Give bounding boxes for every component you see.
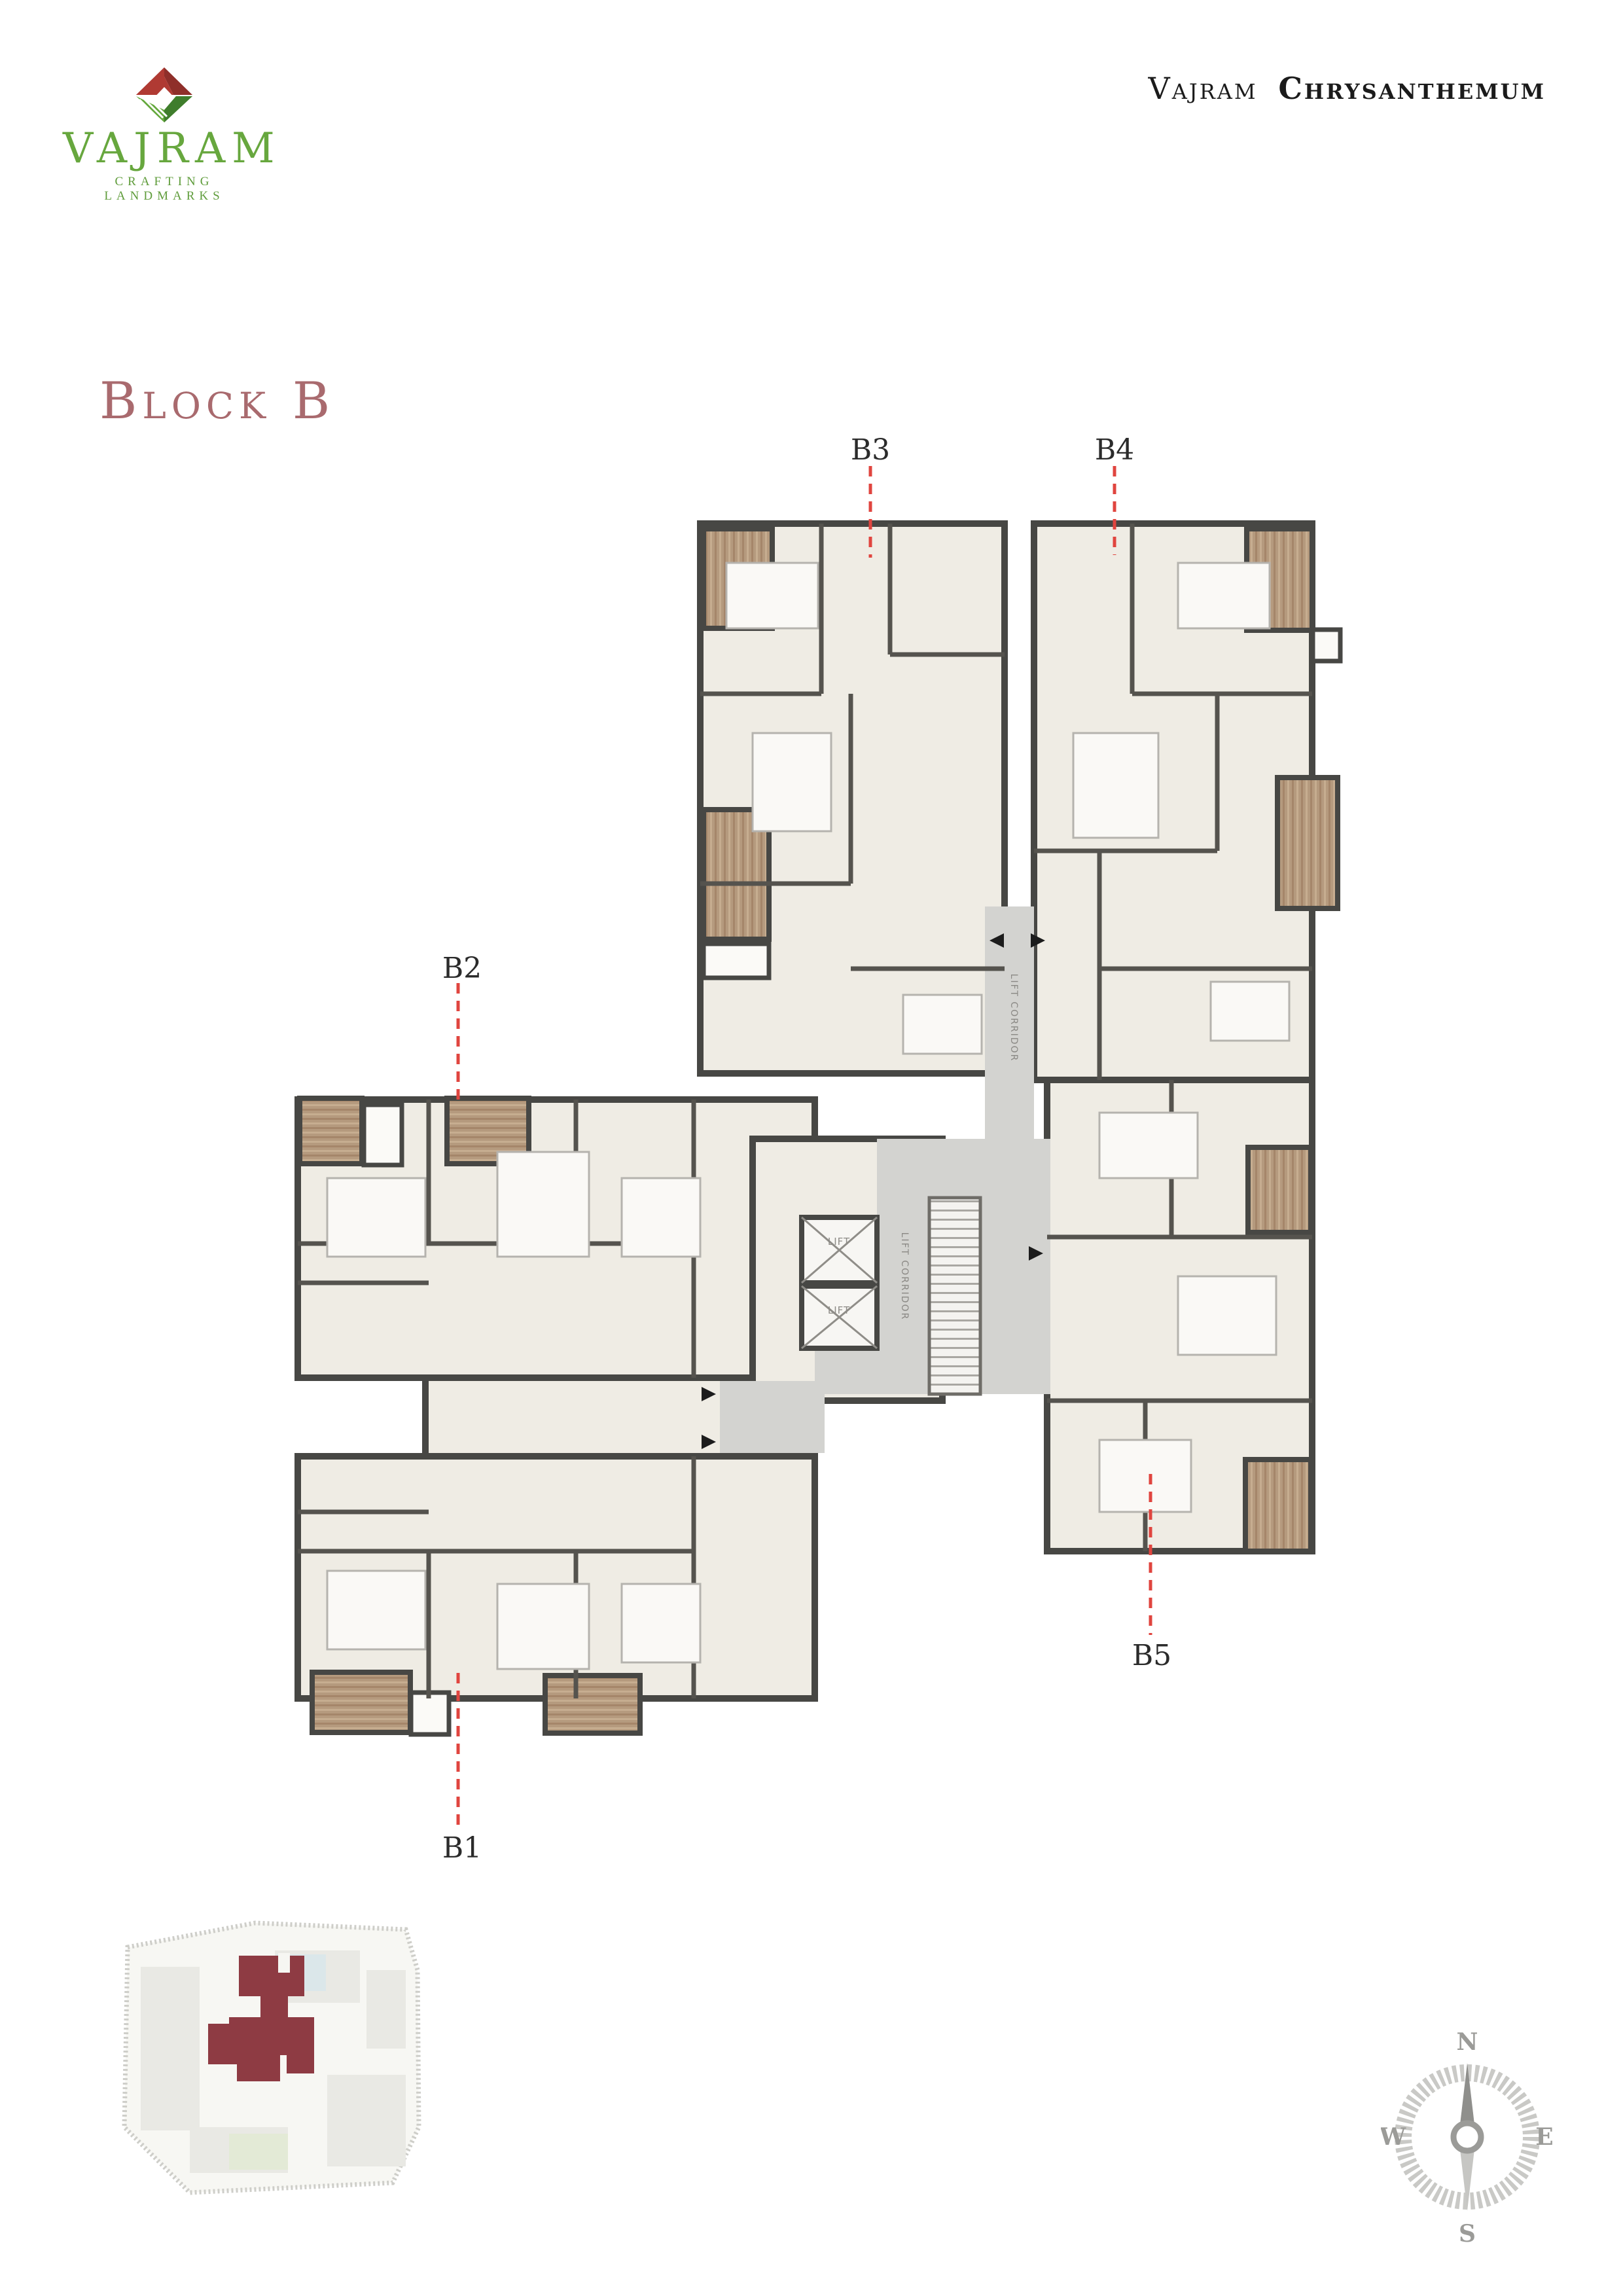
balcony-b2-top-left xyxy=(300,1098,362,1164)
unit-label-b4: B4 xyxy=(1095,433,1134,467)
brochure-page: VAJRAM CRAFTING LANDMARKS Vajram Chrysan… xyxy=(0,0,1623,2296)
utility-box-b1 xyxy=(411,1693,449,1734)
unit-label-b1: B1 xyxy=(442,1831,482,1865)
unit-label-b3: B3 xyxy=(851,433,890,467)
balcony-b4-right xyxy=(1277,778,1338,908)
balcony-b5-right-lower xyxy=(1245,1460,1311,1551)
balcony-b1-bottom-right xyxy=(545,1676,640,1733)
corridor-entry-b1 xyxy=(720,1381,825,1453)
lift-label-2: LIFT xyxy=(828,1304,850,1316)
compass-rose: N S W E xyxy=(1381,2016,1558,2251)
utility-box-b3 xyxy=(704,944,769,978)
site-plan-thumbnail xyxy=(111,1911,556,2219)
ac-ledge-b4 xyxy=(1313,630,1340,661)
staircase xyxy=(929,1198,980,1394)
compass-south-label: S xyxy=(1459,2220,1476,2248)
balcony-b5-right-upper xyxy=(1248,1147,1311,1232)
utility-box-b2 xyxy=(364,1105,402,1165)
compass-north-label: N xyxy=(1457,2028,1478,2056)
site-lawn xyxy=(229,2134,288,2170)
compass-east-label: E xyxy=(1535,2123,1553,2151)
lift-label-1: LIFT xyxy=(828,1236,850,1247)
balcony-b1-bottom-left xyxy=(312,1672,410,1732)
compass-hub xyxy=(1454,2123,1481,2151)
lift-corridor-label-2: LIFT CORRIDOR xyxy=(899,1232,910,1321)
unit-label-b2: B2 xyxy=(442,952,482,985)
compass-west-label: W xyxy=(1381,2123,1406,2151)
unit-label-b5: B5 xyxy=(1132,1639,1171,1672)
lift-corridor-label-1: LIFT CORRIDOR xyxy=(1008,974,1019,1062)
